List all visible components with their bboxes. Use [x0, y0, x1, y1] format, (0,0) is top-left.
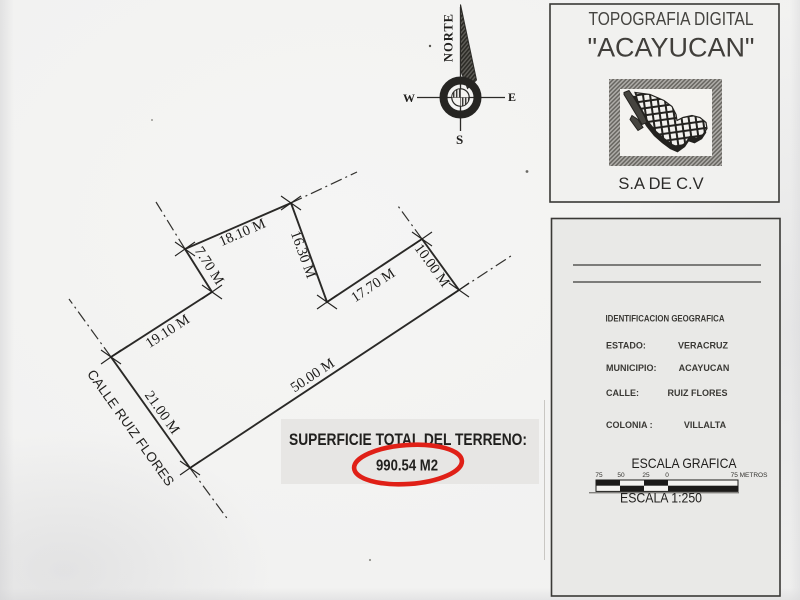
svg-text:25: 25: [642, 472, 650, 479]
svg-text:RUIZ FLORES: RUIZ FLORES: [668, 388, 728, 398]
svg-text:16.30 M: 16.30 M: [287, 229, 319, 281]
svg-text:ESTADO:: ESTADO:: [606, 341, 646, 351]
svg-text:CALLE:: CALLE:: [606, 388, 639, 398]
svg-text:S: S: [456, 132, 463, 147]
svg-text:COLONIA :: COLONIA :: [606, 420, 653, 430]
svg-text:ACAYUCAN: ACAYUCAN: [679, 363, 730, 373]
svg-text:VILLALTA: VILLALTA: [684, 420, 727, 430]
svg-text:VERACRUZ: VERACRUZ: [678, 341, 729, 351]
svg-text:18.10 M: 18.10 M: [217, 216, 269, 250]
svg-text:MUNICIPIO:: MUNICIPIO:: [606, 363, 657, 373]
svg-text:75 METROS: 75 METROS: [731, 472, 769, 479]
svg-text:21.00 M: 21.00 M: [141, 388, 183, 437]
svg-text:W: W: [403, 91, 415, 105]
svg-text:990.54 M2: 990.54 M2: [376, 458, 438, 475]
svg-text:IDENTIFICACION GEOGRAFICA: IDENTIFICACION GEOGRAFICA: [606, 314, 725, 324]
svg-text:75: 75: [595, 472, 603, 479]
svg-text:E: E: [508, 90, 516, 104]
svg-text:TOPOGRAFIA DIGITAL: TOPOGRAFIA DIGITAL: [589, 9, 754, 29]
svg-text:S.A DE C.V: S.A DE C.V: [618, 175, 703, 193]
svg-text:ESCALA 1:250: ESCALA 1:250: [620, 490, 702, 506]
svg-text:NORTE: NORTE: [442, 13, 456, 62]
svg-text:10.00 M: 10.00 M: [411, 241, 453, 290]
svg-text:ESCALA GRAFICA: ESCALA GRAFICA: [632, 455, 738, 471]
svg-text:50: 50: [617, 472, 625, 479]
svg-text:"ACAYUCAN": "ACAYUCAN": [588, 33, 755, 63]
svg-text:0: 0: [665, 472, 669, 479]
